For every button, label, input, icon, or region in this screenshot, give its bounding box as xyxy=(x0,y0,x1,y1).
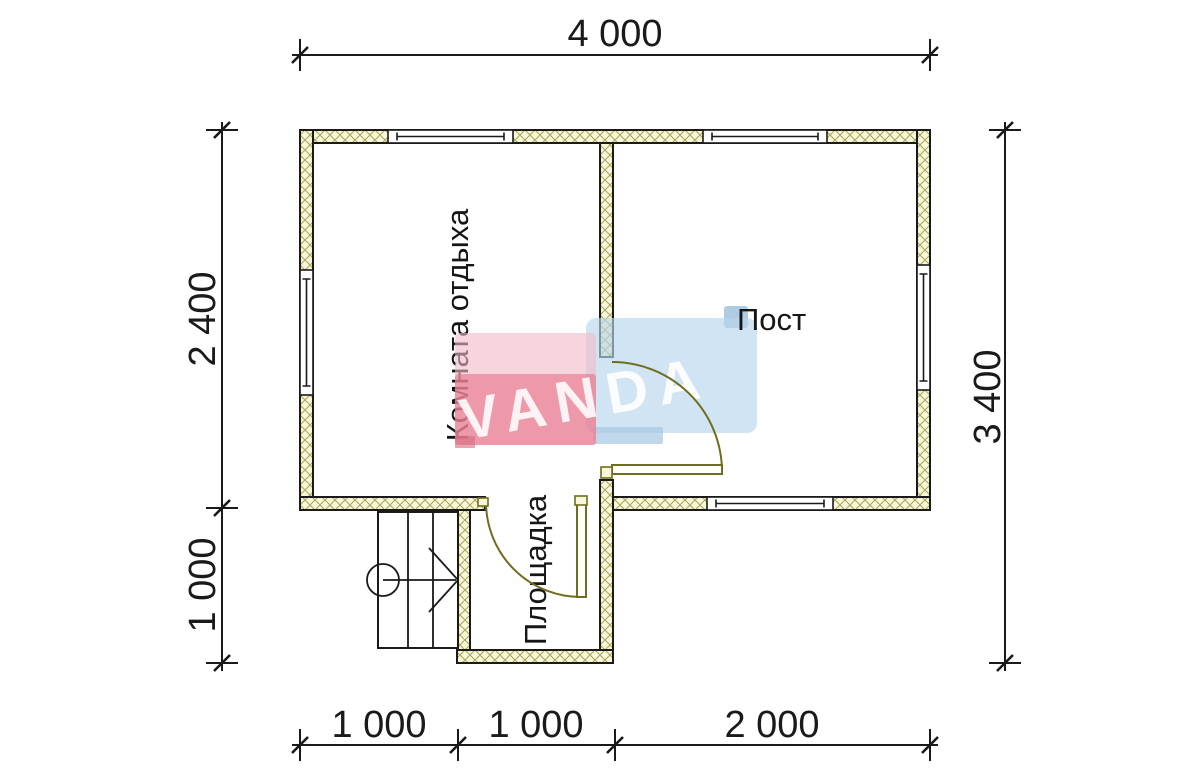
wall-bottom-left xyxy=(300,497,485,510)
dim-left-upper-value: 2 400 xyxy=(182,271,224,366)
dimension-bottom: 1 000 1 000 2 000 xyxy=(292,704,938,761)
floorplan-canvas: Комната отдыха Площадка xyxy=(0,0,1200,772)
vanda-watermark: VANDA xyxy=(455,306,757,453)
room-label-post: Пост xyxy=(737,302,806,337)
window-left xyxy=(300,270,313,395)
logo-blue-step xyxy=(593,427,663,444)
staircase xyxy=(367,512,458,648)
dimension-top: 4 000 xyxy=(292,13,938,71)
dim-bottom-2-value: 1 000 xyxy=(488,704,583,746)
dim-right-value: 3 400 xyxy=(967,349,1009,444)
dimension-right: 3 400 xyxy=(967,122,1021,671)
dimension-left: 2 400 1 000 xyxy=(182,122,238,671)
window-right xyxy=(917,265,930,390)
room-label-landing: Площадка xyxy=(518,494,553,645)
dim-bottom-3-value: 2 000 xyxy=(724,704,819,746)
wall-interior-lower-landing-right xyxy=(600,480,613,663)
window-top-right xyxy=(703,130,827,143)
floor-plan: Комната отдыха Площадка xyxy=(0,0,1200,772)
dim-bottom-1-value: 1 000 xyxy=(331,704,426,746)
dim-top-value: 4 000 xyxy=(567,13,662,55)
window-bottom-right xyxy=(707,497,833,510)
dim-left-lower-value: 1 000 xyxy=(182,537,224,632)
window-top-left xyxy=(388,130,513,143)
wall-landing-bottom xyxy=(457,650,613,663)
